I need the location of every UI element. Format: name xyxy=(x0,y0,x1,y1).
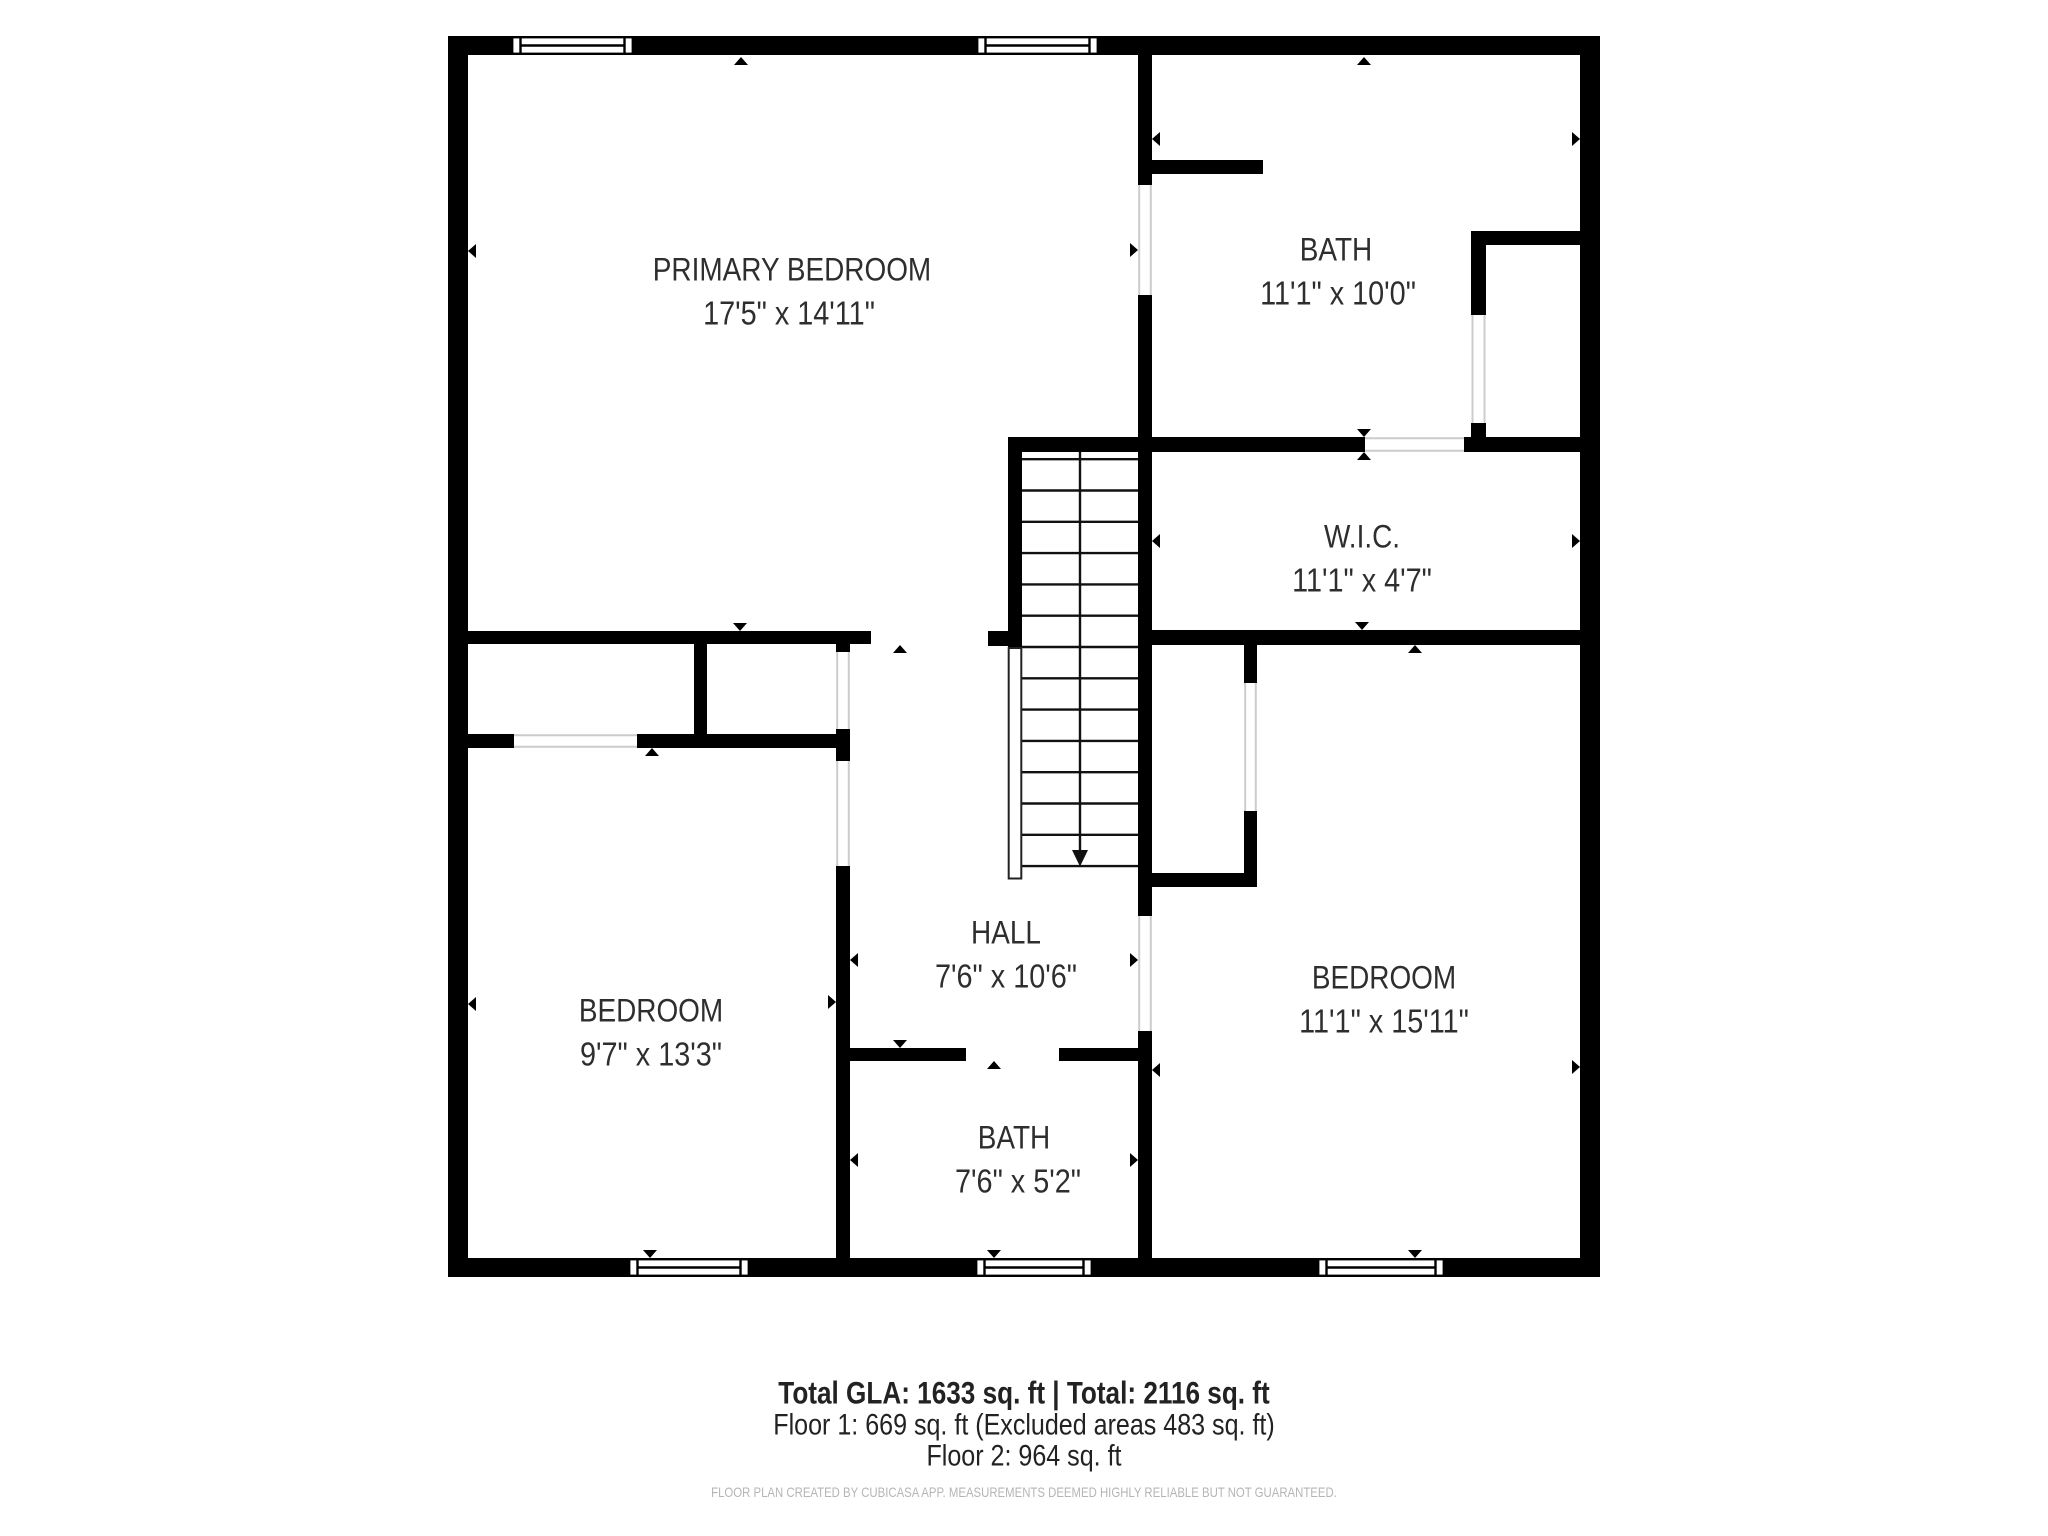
svg-text:Floor 1: 669 sq. ft (Excluded: Floor 1: 669 sq. ft (Excluded areas 483 … xyxy=(773,1408,1274,1441)
svg-text:11'1" x 4'7": 11'1" x 4'7" xyxy=(1292,561,1432,599)
svg-text:17'5" x 14'11": 17'5" x 14'11" xyxy=(703,294,875,332)
svg-text:BEDROOM: BEDROOM xyxy=(1312,961,1456,996)
svg-text:Floor 2: 964 sq. ft: Floor 2: 964 sq. ft xyxy=(926,1439,1121,1472)
svg-text:11'1" x 10'0": 11'1" x 10'0" xyxy=(1260,274,1416,312)
svg-text:9'7" x 13'3": 9'7" x 13'3" xyxy=(580,1035,722,1073)
svg-text:BATH: BATH xyxy=(1300,233,1372,268)
svg-text:BATH: BATH xyxy=(978,1121,1050,1156)
svg-text:PRIMARY BEDROOM: PRIMARY BEDROOM xyxy=(653,253,931,288)
svg-text:HALL: HALL xyxy=(971,916,1041,951)
svg-text:7'6" x 5'2": 7'6" x 5'2" xyxy=(955,1162,1081,1200)
svg-text:7'6" x 10'6": 7'6" x 10'6" xyxy=(935,958,1077,996)
svg-text:11'1" x 15'11": 11'1" x 15'11" xyxy=(1299,1002,1469,1040)
svg-text:BEDROOM: BEDROOM xyxy=(579,994,723,1029)
svg-text:W.I.C.: W.I.C. xyxy=(1324,520,1400,555)
svg-text:FLOOR PLAN CREATED BY CUBICASA: FLOOR PLAN CREATED BY CUBICASA APP. MEAS… xyxy=(711,1485,1337,1500)
svg-text:Total GLA: 1633 sq. ft | Total: Total GLA: 1633 sq. ft | Total: 2116 sq.… xyxy=(778,1376,1270,1411)
